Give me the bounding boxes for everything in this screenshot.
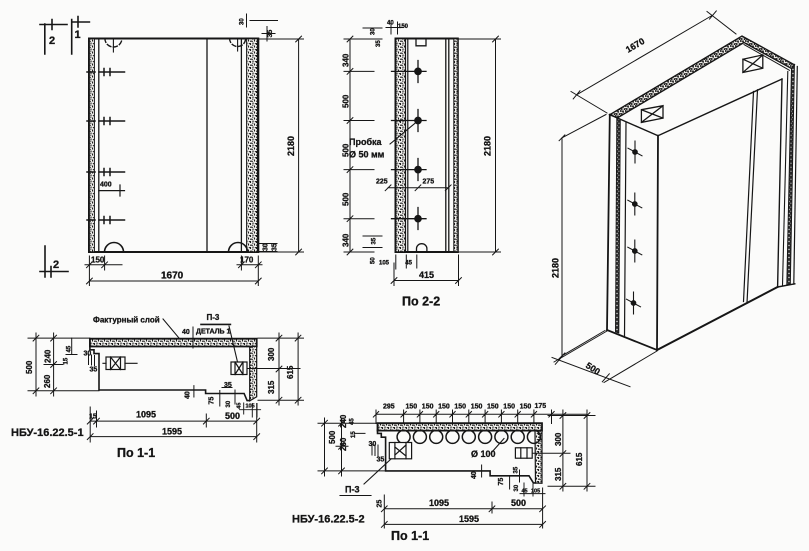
- svg-text:75: 75: [498, 478, 505, 486]
- svg-text:2: 2: [49, 35, 55, 47]
- svg-text:30: 30: [371, 28, 377, 35]
- svg-text:35: 35: [376, 40, 382, 47]
- svg-text:30: 30: [226, 400, 232, 407]
- svg-text:Пробка: Пробка: [349, 137, 383, 147]
- svg-text:30: 30: [263, 243, 270, 251]
- svg-text:По 2-2: По 2-2: [402, 295, 440, 309]
- svg-text:30: 30: [369, 441, 377, 448]
- svg-text:35: 35: [514, 466, 520, 473]
- svg-text:40: 40: [471, 471, 478, 479]
- svg-text:150: 150: [503, 404, 515, 411]
- svg-text:2180: 2180: [286, 136, 296, 156]
- svg-text:315: 315: [554, 467, 563, 481]
- svg-text:260: 260: [43, 374, 52, 388]
- svg-text:500: 500: [342, 192, 351, 206]
- svg-text:615: 615: [286, 365, 295, 379]
- svg-text:150: 150: [520, 404, 532, 411]
- svg-text:По 1-1: По 1-1: [117, 446, 155, 460]
- svg-text:35: 35: [224, 382, 232, 389]
- svg-text:1595: 1595: [162, 427, 182, 437]
- svg-text:40: 40: [185, 391, 192, 399]
- svg-text:175: 175: [535, 403, 547, 410]
- svg-text:30: 30: [84, 351, 92, 358]
- svg-text:По 1-1: По 1-1: [391, 529, 429, 543]
- svg-text:400: 400: [100, 182, 112, 189]
- svg-text:45: 45: [350, 418, 356, 425]
- svg-text:1: 1: [75, 29, 81, 41]
- svg-text:150: 150: [406, 404, 418, 411]
- svg-text:150: 150: [422, 404, 434, 411]
- svg-text:150: 150: [398, 24, 409, 30]
- svg-text:40: 40: [387, 21, 394, 27]
- svg-text:40: 40: [182, 329, 190, 336]
- svg-text:500: 500: [584, 360, 602, 377]
- svg-text:500: 500: [25, 360, 34, 374]
- svg-text:150: 150: [487, 404, 499, 411]
- svg-text:150: 150: [91, 256, 105, 265]
- svg-text:105: 105: [531, 489, 540, 495]
- svg-text:240: 240: [339, 414, 348, 428]
- svg-text:225: 225: [376, 179, 388, 186]
- svg-text:105: 105: [246, 404, 255, 410]
- svg-text:П-3: П-3: [345, 485, 359, 495]
- svg-text:1670: 1670: [624, 36, 646, 55]
- svg-text:500: 500: [342, 94, 351, 108]
- svg-text:240: 240: [44, 349, 53, 363]
- svg-text:45: 45: [405, 261, 412, 267]
- svg-text:170: 170: [240, 256, 254, 265]
- svg-text:1095: 1095: [429, 498, 449, 508]
- svg-text:275: 275: [423, 179, 435, 186]
- svg-text:15: 15: [64, 357, 70, 364]
- svg-text:30: 30: [240, 18, 246, 25]
- svg-text:340: 340: [342, 53, 351, 67]
- svg-text:Фактурный слой: Фактурный слой: [93, 316, 160, 325]
- svg-text:1670: 1670: [161, 271, 184, 282]
- svg-text:Ø 50 мм: Ø 50 мм: [349, 150, 385, 160]
- svg-text:ДЕТАЛЬ 1: ДЕТАЛЬ 1: [196, 329, 231, 336]
- svg-text:75: 75: [209, 397, 216, 405]
- svg-text:615: 615: [575, 452, 584, 466]
- svg-text:35: 35: [90, 367, 98, 374]
- svg-text:1095: 1095: [136, 410, 156, 420]
- svg-text:150: 150: [454, 404, 466, 411]
- svg-text:300: 300: [554, 432, 563, 446]
- svg-text:П-3: П-3: [207, 313, 220, 322]
- svg-text:50: 50: [371, 257, 377, 264]
- svg-text:НБУ-16.22.5-2: НБУ-16.22.5-2: [292, 514, 365, 526]
- svg-text:105: 105: [379, 261, 390, 267]
- svg-text:45: 45: [237, 403, 243, 409]
- svg-text:315: 315: [267, 380, 276, 394]
- svg-text:2: 2: [53, 259, 59, 271]
- svg-text:300: 300: [267, 347, 276, 361]
- svg-text:35: 35: [377, 457, 385, 464]
- svg-text:15: 15: [89, 413, 97, 420]
- svg-text:Ø 100: Ø 100: [471, 449, 496, 459]
- svg-text:150: 150: [471, 404, 483, 411]
- svg-text:35: 35: [272, 243, 279, 251]
- svg-text:415: 415: [419, 270, 434, 280]
- svg-text:150: 150: [438, 404, 450, 411]
- svg-text:15: 15: [351, 431, 357, 438]
- svg-text:500: 500: [511, 498, 526, 508]
- svg-text:500: 500: [328, 430, 337, 444]
- svg-text:30: 30: [514, 484, 520, 491]
- svg-text:500: 500: [225, 411, 240, 421]
- svg-text:45: 45: [67, 345, 73, 352]
- svg-text:1595: 1595: [459, 514, 479, 524]
- svg-text:260: 260: [339, 437, 348, 451]
- svg-text:340: 340: [342, 233, 351, 247]
- svg-text:НБУ-16.22.5-1: НБУ-16.22.5-1: [11, 427, 84, 439]
- svg-text:35: 35: [267, 30, 274, 38]
- svg-text:2180: 2180: [551, 258, 561, 278]
- svg-text:45: 45: [522, 489, 528, 495]
- svg-text:2180: 2180: [483, 136, 493, 156]
- svg-text:295: 295: [383, 404, 395, 411]
- svg-text:500: 500: [342, 143, 351, 157]
- svg-text:25: 25: [377, 500, 384, 508]
- svg-text:35: 35: [372, 237, 378, 244]
